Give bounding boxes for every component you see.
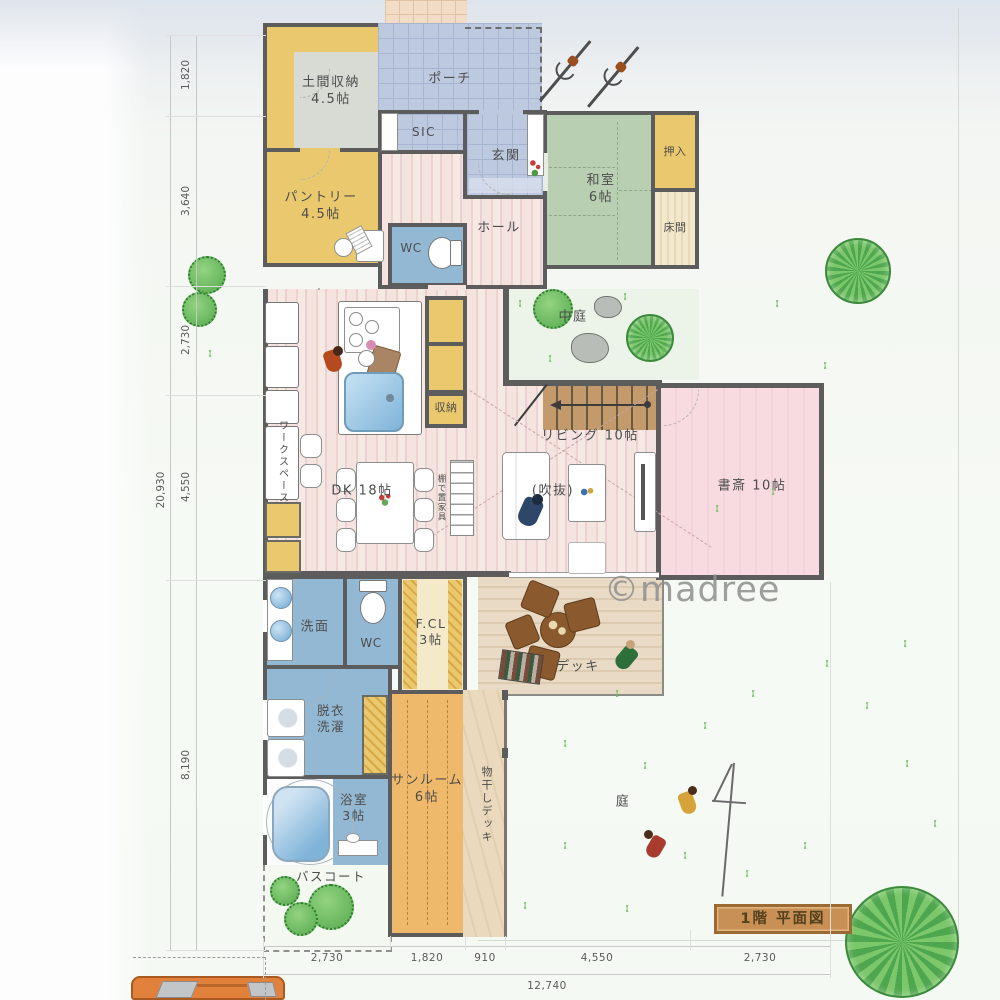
tatami-line-h1 <box>549 167 615 168</box>
person-cooking-head <box>333 346 343 356</box>
grass-tuft <box>772 300 782 307</box>
dim-line-left-outer <box>170 35 171 950</box>
bathcourt-door-arc <box>318 288 320 290</box>
kid-garden1-head <box>688 786 697 795</box>
grass-tuft <box>622 905 632 912</box>
grass-tuft <box>520 902 530 909</box>
deck-rug <box>498 649 544 685</box>
bathtub <box>272 786 330 862</box>
ws-yellow-cab1 <box>265 502 301 538</box>
genkan-flowers <box>529 158 542 178</box>
garden-tree-right <box>825 238 891 304</box>
car-rear-window <box>247 982 277 997</box>
car-roof-line <box>197 984 247 987</box>
dim-ext <box>166 580 266 581</box>
dim-bottom-4: 2,730 <box>744 952 777 964</box>
room-size: 4.5帖 <box>284 207 357 224</box>
label-senmen: 洗面 <box>300 620 329 637</box>
courtyard-stone2 <box>571 333 609 363</box>
grass-tuft <box>748 690 758 697</box>
site-right-edge <box>958 8 959 940</box>
label-pantry: パントリー4.5帖 <box>284 190 357 224</box>
grass-tuft <box>820 362 830 369</box>
grass-tuft <box>712 505 722 512</box>
label-monohoshi: 物干しデッキ <box>478 766 494 844</box>
grass-tuft <box>560 740 570 747</box>
burner2 <box>365 320 379 334</box>
label-datsui: 脱衣洗濯 <box>311 703 351 736</box>
grass-tuft <box>620 293 630 300</box>
ws-yellow-cab2 <box>265 540 301 573</box>
room-size: 6帖 <box>391 790 463 807</box>
ws-cabinet1 <box>265 302 299 344</box>
pantry-chair <box>334 238 353 257</box>
dining-chair4 <box>414 468 434 492</box>
toilet-upper-tank <box>450 240 462 266</box>
room-name: 浴室 <box>340 792 368 808</box>
door-gap-hall-dk <box>428 285 466 290</box>
dining-chair2 <box>336 498 356 522</box>
datsui-closet <box>362 695 388 775</box>
wall-dk-courtyard <box>503 285 509 384</box>
tv-screen <box>641 464 645 520</box>
grass-tuft <box>930 820 940 827</box>
label-hall: ホール <box>477 221 521 238</box>
label-shelf-note: 棚で置家具 <box>435 474 447 522</box>
grass-tuft <box>640 762 650 769</box>
dining-chair5 <box>414 498 434 522</box>
bath-counter <box>338 840 378 856</box>
left-bush2 <box>182 292 217 327</box>
dim-ext <box>166 116 266 117</box>
toilet-lower-tank <box>359 580 387 592</box>
dim-ext <box>263 938 264 978</box>
label-sic: SIC <box>412 125 436 141</box>
washer2 <box>267 739 305 777</box>
grass-tuft <box>902 760 912 767</box>
dim-left-4: 8,190 <box>180 750 192 780</box>
grass-tuft <box>545 355 555 362</box>
dim-ext <box>690 930 691 950</box>
dim-bottom-1: 1,820 <box>411 952 444 964</box>
stairs-arrow-head <box>550 400 561 410</box>
label-oshiire: 押入 <box>664 145 687 159</box>
tatami-line-v <box>617 122 618 260</box>
dim-bottom-3: 4,550 <box>581 952 614 964</box>
faucet <box>386 394 394 402</box>
label-genkan: 玄関 <box>491 149 520 166</box>
grass-tuft <box>680 852 690 859</box>
car-icon <box>131 976 285 1000</box>
grass-tuft <box>612 690 622 697</box>
room-size: 3帖 <box>340 808 368 824</box>
label-tokonoma: 床間 <box>664 221 687 235</box>
sic-cabinet <box>381 113 398 151</box>
grass-tuft <box>205 350 215 357</box>
dim-left-2: 2,730 <box>180 325 192 355</box>
kid-garden2-head <box>644 830 653 839</box>
dim-ext <box>390 936 391 950</box>
label-dk: DK 18帖 <box>331 484 392 501</box>
coffee-table-deco <box>580 486 594 498</box>
label-niwa: 庭 <box>616 795 631 812</box>
kitchen-sink <box>344 372 404 432</box>
fcl-closet-right <box>448 580 462 689</box>
sunroom-line1 <box>407 700 408 925</box>
dim-line-bottom-inner <box>263 946 830 947</box>
dining-chair6 <box>414 528 434 552</box>
label-wc-lower: WC <box>360 636 381 652</box>
dim-bottom-2: 910 <box>474 952 496 964</box>
grass-tuft <box>700 722 710 729</box>
monohoshi-stub2 <box>502 690 508 700</box>
dim-ext <box>505 936 506 950</box>
label-nakaniwa: 中庭 <box>558 310 587 327</box>
washer1 <box>267 699 305 737</box>
label-doma: 土間収納4.5帖 <box>302 75 360 109</box>
label-washitsu: 和室6帖 <box>586 173 615 207</box>
dim-line-left-inner <box>196 35 197 950</box>
label-living: リビング 10帖 <box>541 429 639 446</box>
door-gap-genkan-porch <box>479 110 523 115</box>
deck-table-plates <box>547 619 567 639</box>
shelf-unit <box>450 460 474 536</box>
floor-title-sign: 1階 平面図 <box>714 904 852 934</box>
sink2 <box>270 620 292 642</box>
dk-cabinet-divider <box>429 342 463 346</box>
watermark: ©madree <box>604 570 780 610</box>
toilet-lower-bowl <box>360 592 386 624</box>
label-bathcourt: バスコート <box>296 869 366 885</box>
dim-ext <box>166 286 266 287</box>
monohoshi-stub1 <box>502 748 508 758</box>
porch-dashed-extension <box>465 27 542 112</box>
label-fcl: F.CL3帖 <box>416 616 447 649</box>
dim-ext <box>465 936 466 950</box>
dim-bottom-0: 2,730 <box>311 952 344 964</box>
grass-tuft <box>560 842 570 849</box>
dim-bottom-total: 12,740 <box>527 980 567 992</box>
room-name: 土間収納 <box>302 75 360 92</box>
label-porch: ポーチ <box>428 72 472 89</box>
garden-tree-corner <box>845 886 959 998</box>
ws-counter <box>265 390 299 424</box>
dining-chair3 <box>336 528 356 552</box>
room-size: 6帖 <box>586 190 615 207</box>
room-name: サンルーム <box>391 773 463 790</box>
room-name: パントリー <box>284 190 357 207</box>
room-size: 3帖 <box>416 632 447 648</box>
burner1 <box>349 312 363 326</box>
grass-tuft <box>900 640 910 647</box>
grass-tuft <box>800 842 810 849</box>
label-shosai: 書斎 10帖 <box>718 479 787 496</box>
sunroom-line2 <box>427 700 428 925</box>
floor-plan: 土間収納4.5帖 パントリー4.5帖 ポーチ SIC 玄関 ホール WC 和室6… <box>0 0 1000 1000</box>
stairs-arrow-dot <box>644 401 651 408</box>
dim-ext <box>166 950 266 951</box>
bath-cup <box>346 833 360 843</box>
room-name: 和室 <box>586 173 615 190</box>
label-bathroom: 浴室3帖 <box>340 792 368 825</box>
tv-board <box>634 452 656 532</box>
bathcourt-bush3 <box>284 902 318 936</box>
left-bush1 <box>188 256 226 294</box>
dim-left-0: 1,820 <box>180 60 192 90</box>
label-deck: デッキ <box>556 660 600 677</box>
pink-bowl <box>366 340 376 350</box>
boundary-dashed-h <box>133 957 265 958</box>
ws-chair2 <box>300 464 322 488</box>
dim-left-total: 20,930 <box>155 472 167 509</box>
grass-tuft <box>862 702 872 709</box>
dim-left-1: 3,640 <box>180 186 192 216</box>
grass-tuft <box>742 870 752 877</box>
grass-tuft <box>515 300 525 307</box>
dim-ext <box>166 395 266 396</box>
label-wc-upper: WC <box>400 241 421 257</box>
dim-ext <box>166 35 266 36</box>
label-fukinuke: (吹抜) <box>532 484 574 501</box>
left-margin-band <box>0 0 148 1000</box>
ws-cabinet2 <box>265 346 299 388</box>
ws-chair1 <box>300 434 322 458</box>
label-sunroom: サンルーム6帖 <box>391 773 463 807</box>
burner3 <box>349 333 363 347</box>
dim-line-bottom-outer <box>263 974 830 975</box>
room-name: F.CL <box>416 616 447 632</box>
living-rug <box>568 542 606 574</box>
car-windshield <box>156 981 199 998</box>
person-deck-head <box>626 640 635 649</box>
dim-left-3: 4,550 <box>180 472 192 502</box>
room-size: 4.5帖 <box>302 92 360 109</box>
label-workspace: ワークスペース <box>275 420 290 504</box>
sink1 <box>270 587 292 609</box>
sunroom-line3 <box>447 700 448 925</box>
dim-ext <box>830 582 831 978</box>
tatami-line-h2 <box>549 215 615 216</box>
courtyard-stone1 <box>594 296 622 318</box>
label-shuno: 収納 <box>435 401 458 415</box>
boundary-dashed-v <box>265 957 266 1000</box>
mixing-bowl <box>358 350 375 367</box>
grass-tuft <box>658 348 668 355</box>
